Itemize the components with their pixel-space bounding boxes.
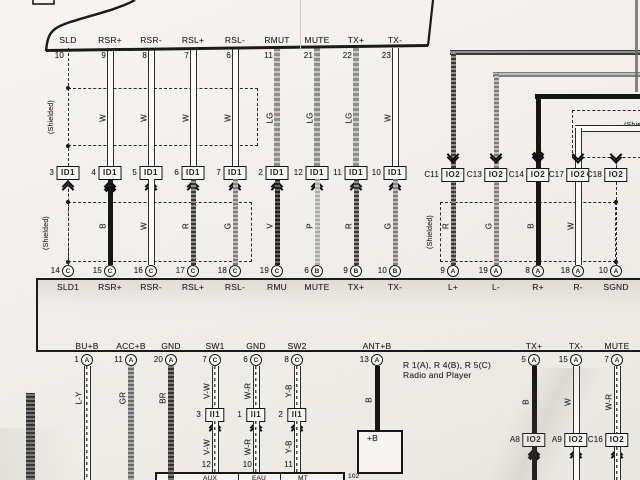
radio-pin-RSR-: C [145,265,157,277]
bottom-box-divider [280,472,281,480]
connector-ID1-pin12: ID1 [306,166,329,180]
radio-pin-RSR--num: 16 [134,267,143,276]
wire-lower-bottom-SW2-5 [294,421,301,472]
wire-color-label-bottom-SW2-5: Y-B [286,384,295,397]
wire-bottom-TX--8 [573,366,580,434]
wire-color-label-upper-RSR--2: W [141,114,150,122]
radio-bottom-pin-TX+-7: A [528,354,540,366]
radio-bottom-pin-label-SW1-3: SW1 [205,342,224,351]
radio-bottom-pin-SW2-5: C [291,354,303,366]
radio-connector-codes: R 1(A), R 4(B), R 5(C) [403,361,491,370]
radio-pin-label-SGND: SGND [603,283,628,292]
radio-pin-RMU: C [271,265,283,277]
radio-bottom-pin-BU+B-0-num: 1 [74,356,79,365]
edge-harness-wire [26,393,35,480]
shield-boundary-lower-left [68,202,252,262]
radio-bottom-pin-MUTE-9: A [611,354,623,366]
connector-ID1-pin2: ID1 [266,166,289,180]
connector-ID1-pin5: ID1 [140,166,163,180]
radio-pin-R+-num: 8 [525,267,530,276]
connector-R+-2-arrow-icon [534,150,543,162]
bottom-connector-box [155,472,345,480]
wire-color-label-upper-RMU-5: LG [267,112,276,123]
radio-bottom-pin-SW2-5-num: 8 [284,356,289,365]
wire-color-label-lower-L--1: G [486,223,495,229]
connector-ID1-pin6-pin-num: 6 [174,169,179,178]
wire-color-label-lower-L+-0: R [443,223,452,229]
connector-IO2-pinC17-pin-num: C17 [549,171,564,180]
wire-color-label-upper-MUTE-6: LG [307,112,316,123]
connector-ID1-pin5-pin-num: 5 [132,169,137,178]
connector-IO2-pinA9-pin-num: A9 [552,436,562,445]
radio-pin-RSR+: C [104,265,116,277]
radio-bottom-pin-label-TX+-7: TX+ [526,342,542,351]
connector-II1-pin1: II1 [246,408,265,422]
shielded-label-lower-left: (Shielded) [43,216,51,250]
wire-color-label-bottom-MUTE-9: W-R [606,394,615,410]
wire-color-label-lower-RSR--2: W [141,222,150,230]
connector-SGND-4-arrow-icon [612,150,621,162]
wire-color-label-upper-RSL+-3: W [183,114,192,122]
connector-IO2-pinC16-pin-num: C16 [588,436,603,445]
wire-color-label-bottom-SW1-3: V-W [204,383,213,399]
radio-bottom-pin-GND-2-num: 20 [154,356,163,365]
radio-pin-label-RSR+: RSR+ [98,283,122,292]
radio-pin-TX--num: 10 [378,267,387,276]
wire-color-label-lower-R+-2: B [528,223,537,229]
radio-pin-label-R-: R- [573,283,582,292]
radio-bottom-pin-label-GND-2: GND [161,342,181,351]
junction-pin-num-10: 10 [243,461,252,470]
connector-IO2-pinC13: IO2 [484,168,507,182]
junction-pin-num-11: 11 [284,461,293,470]
radio-bottom-pin-ACC+B-1: A [125,354,137,366]
connector-IO2-pinC18-pin-num: C18 [587,171,602,180]
wire-shield-drain-bottom [68,179,69,265]
wire-color-label-lower-bottom-GND-4: W-R [245,439,254,455]
connector-ID1-pin7: ID1 [224,166,247,180]
wire-color-label-upper-RSL--4: W [225,114,234,122]
radio-bottom-pin-MUTE-9-num: 7 [604,356,609,365]
radio-pin-RSR+-num: 15 [93,267,102,276]
wire-color-label-bottom-TX--8: W [565,398,574,406]
connector-ID1-pin12-pin-num: 12 [294,169,303,178]
radio-component-name: Radio and Player [403,371,471,380]
wire-bottom-GND-4 [253,366,260,409]
bottom-box-cell-label: EAU [252,475,266,480]
connector-L--1-arrow-icon [492,150,501,162]
radio-pin-R--num: 18 [561,267,570,276]
connector-IO2-pinC11: IO2 [441,168,464,182]
radio-pin-R+: A [532,265,544,277]
wire-color-label-bottom-ANT+B-6: B [366,397,375,403]
wire-color-label-lower-RSL+-3: R [183,223,192,229]
connector-ID1-pin2-pin-num: 2 [258,169,263,178]
scan-shadow-artifact [420,368,640,480]
connector-ID1-pin11: ID1 [345,166,368,180]
radio-bottom-pin-SW1-3: C [209,354,221,366]
radio-bottom-pin-SW1-3-num: 7 [202,356,207,365]
radio-pin-L+-num: 9 [440,267,445,276]
wire-bottom-MUTE-9 [614,366,621,434]
radio-pin-SGND: A [610,265,622,277]
wire-bottom-ACC+B-1 [128,366,134,480]
connector-ID1-pin3-pin-num: 3 [49,169,54,178]
top-connector-right-edge [428,0,433,46]
wire-color-label-bottom-TX+-7: B [523,399,532,405]
radio-bottom-pin-label-GND-4: GND [246,342,266,351]
radio-bottom-pin-ACC+B-1-num: 11 [114,356,123,365]
wire-color-label-lower-RMU-5: V [267,223,276,229]
top-connector-outline [0,0,640,70]
wire-color-label-lower-RSL--4: G [225,223,234,229]
radio-pin-label-SLD1: SLD1 [57,283,79,292]
wire-lower-RSL+-3 [191,179,196,265]
wire-lower-RSR+-1 [108,179,113,265]
radio-pin-RMU-num: 19 [260,267,269,276]
wire-continues-bottom-TX+-7 [532,447,537,480]
connector-ID1-pin11-pin-num: 11 [333,169,342,178]
radio-pin-label-RSR-: RSR- [140,283,162,292]
connector-IO2-pinA9: IO2 [564,433,587,447]
radio-pin-L-: A [490,265,502,277]
wire-bend-horizontal-R--3 [575,125,640,132]
connector-II1-pin2: II1 [287,408,306,422]
connector-IO2-pinC14: IO2 [526,168,549,182]
radio-pin-label-TX-: TX- [388,283,402,292]
connector-ID1-pin3: ID1 [57,166,80,180]
connector-IO2-pinC13-pin-num: C13 [467,171,482,180]
wire-continues-bottom-TX--8 [573,447,580,480]
connector-ID1-pin7-pin-num: 7 [216,169,221,178]
bottom-box-cell-label: MT [298,475,308,480]
radio-bottom-pin-GND-2: A [165,354,177,366]
radio-pin-SGND-num: 10 [599,267,608,276]
scan-shadow-artifact [0,428,120,480]
radio-bottom-pin-ANT+B-6-num: 13 [360,356,369,365]
radio-pin-label-L+: L+ [448,283,458,292]
radio-pin-label-RMU: RMU [267,283,287,292]
wire-lower-bottom-GND-4 [253,421,260,472]
connector-IO2-pinA8: IO2 [522,433,545,447]
wire-color-label-bottom-BU+B-0: L-Y [76,391,85,404]
radio-pin-TX+-num: 9 [343,267,348,276]
connector-II1-pin3: II1 [205,408,224,422]
connector-ID1-pin6: ID1 [182,166,205,180]
wire-color-label-bottom-GND-2: BR [160,392,169,404]
radio-bottom-pin-GND-4-num: 6 [243,356,248,365]
shielded-label-lower-right: (Shielded) [427,215,435,249]
radio-pin-label-MUTE: MUTE [305,283,330,292]
wire-color-label-lower-MUTE-6: P [307,223,316,229]
wire-bottom-BU+B-0 [84,366,91,480]
connector-ID1-pin10: ID1 [384,166,407,180]
radio-bottom-pin-label-BU+B-0: BU+B [75,342,98,351]
connector-II1-pin3-pin-num: 3 [196,411,201,420]
radio-pin-MUTE: B [311,265,323,277]
wire-continues-bottom-MUTE-9 [614,447,621,480]
connector-IO2-pinC14-pin-num: C14 [509,171,524,180]
radio-pin-label-TX+: TX+ [348,283,364,292]
radio-pin-MUTE-num: 6 [304,267,309,276]
bottom-box-cell-label: AUX [203,475,217,480]
connector-II1-pin1-pin-num: 1 [237,411,242,420]
wire-color-label-lower-R--3: W [568,222,577,230]
connector-ID1-pin4-pin-num: 4 [91,169,96,178]
radio-pin-TX+: B [350,265,362,277]
radio-bottom-pin-label-TX--8: TX- [569,342,583,351]
radio-bottom-pin-GND-4: C [250,354,262,366]
wire-bottom-TX+-7 [532,366,537,434]
radio-pin-TX-: B [389,265,401,277]
wire-bottom-SW2-5 [294,366,301,409]
wiring-diagram-page: (Shielded) (Shielded) (Shielded) (Shield… [0,0,640,480]
radio-bottom-pin-label-ANT+B-6: ANT+B [363,342,392,351]
wire-lower-MUTE-6 [315,179,320,265]
wire-color-label-lower-TX+-7: R [346,223,355,229]
wire-color-label-lower-TX--8: G [385,223,394,229]
radio-pin-label-L-: L- [492,283,500,292]
wire-bottom-ANT+B-6 [375,366,380,432]
connector-II1-pin2-pin-num: 2 [278,411,283,420]
shielded-label-upper-left: (Shielded) [48,100,56,134]
connector-ID1-pin4: ID1 [99,166,122,180]
wire-color-label-bottom-GND-4: W-R [245,383,254,399]
wire-lower-SGND-4 [616,182,617,265]
wire-color-label-lower-bottom-SW1-3: V-W [204,439,213,455]
wire-bend-horizontal-R+-2 [535,94,640,99]
radio-bottom-pin-TX--8: A [570,354,582,366]
radio-pin-label-RSL+: RSL+ [182,283,204,292]
radio-pin-RSL-: C [229,265,241,277]
connector-IO2-pinC16: IO2 [605,433,628,447]
radio-pin-L--num: 19 [479,267,488,276]
wire-bottom-SW1-3 [212,366,219,409]
wire-color-label-upper-RSR+-1: W [100,114,109,122]
radio-bottom-pin-BU+B-0: A [81,354,93,366]
wire-color-label-upper-TX--8: W [385,114,394,122]
antenna-box-plus-b-label: +B [367,434,378,443]
radio-bottom-pin-ANT+B-6: A [371,354,383,366]
radio-pin-SLD1-num: 14 [51,267,60,276]
radio-bottom-pin-label-SW2-5: SW2 [287,342,306,351]
connector-IO2-pinC11-pin-num: C11 [424,171,439,180]
wire-bottom-GND-2 [168,366,174,480]
top-connector-left-curve [46,0,135,51]
antenna-box-code: 102 [348,473,359,480]
radio-pin-SLD1: C [62,265,74,277]
connector-R--3-arrow-icon [574,150,583,162]
wire-color-label-upper-TX+-7: LG [346,112,355,123]
radio-pin-R-: A [572,265,584,277]
antenna-amplifier-box [357,430,403,474]
shield-boundary-lower-right [440,202,616,262]
radio-pin-label-R+: R+ [532,283,544,292]
bottom-box-divider [238,472,239,480]
connector-L+-0-arrow-icon [449,150,458,162]
connector-ID1-pin10-pin-num: 10 [372,169,381,178]
connector-IO2-pinC18: IO2 [604,168,627,182]
top-edge-box-fragment [33,0,54,4]
radio-pin-RSL+: C [187,265,199,277]
junction-pin-num-12: 12 [202,461,211,470]
top-connector-bottom-edge [46,46,428,51]
radio-bottom-pin-TX+-7-num: 5 [521,356,526,365]
radio-bottom-pin-label-ACC+B-1: ACC+B [116,342,146,351]
radio-pin-RSL--num: 18 [218,267,227,276]
wire-lower-bottom-SW1-3 [212,421,219,472]
radio-pin-L+: A [447,265,459,277]
radio-bottom-pin-TX--8-num: 15 [559,356,568,365]
wire-bend-horizontal-L--1 [493,72,640,77]
radio-pin-label-RSL-: RSL- [225,283,245,292]
wire-lower-RMU-5 [275,179,280,265]
wire-lower-TX+-7 [354,179,359,265]
connector-IO2-pinA8-pin-num: A8 [510,436,520,445]
wire-color-label-lower-bottom-SW2-5: Y-B [286,440,295,453]
radio-pin-RSL+-num: 17 [176,267,185,276]
wire-color-label-bottom-ACC+B-1: GR [120,392,129,404]
radio-bottom-pin-label-MUTE-9: MUTE [605,342,630,351]
wire-color-label-lower-RSR+-1: B [100,223,109,229]
